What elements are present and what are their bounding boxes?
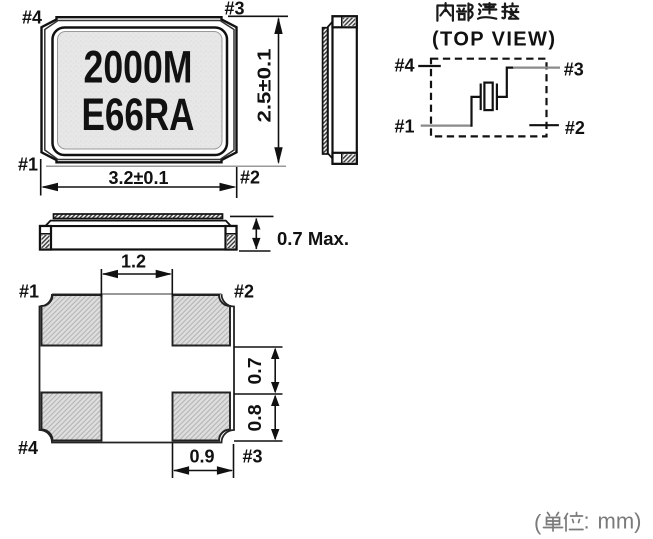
svg-text:#1: #1: [395, 116, 415, 136]
svg-text:(TOP VIEW): (TOP VIEW): [432, 29, 556, 51]
svg-text:mm): mm): [598, 509, 642, 534]
svg-text:#1: #1: [18, 155, 38, 175]
svg-text:#3: #3: [564, 60, 584, 80]
svg-text:0.8: 0.8: [245, 405, 265, 432]
svg-text:E66RA: E66RA: [82, 89, 195, 140]
svg-text:#2: #2: [565, 118, 585, 138]
svg-text:#3: #3: [243, 447, 263, 467]
svg-text:0.7: 0.7: [245, 358, 265, 385]
svg-text:#4: #4: [395, 55, 415, 75]
svg-text:2000M: 2000M: [84, 42, 193, 93]
svg-text:#2: #2: [240, 168, 260, 188]
svg-text:0.7 Max.: 0.7 Max.: [277, 228, 349, 249]
svg-text:3.2±0.1: 3.2±0.1: [109, 168, 169, 188]
svg-text:#1: #1: [19, 282, 39, 302]
svg-text:2.5±0.1: 2.5±0.1: [255, 49, 275, 123]
svg-text:#4: #4: [18, 438, 38, 458]
svg-text:(: (: [534, 510, 542, 535]
svg-text::: :: [584, 509, 590, 534]
svg-text:#4: #4: [22, 8, 42, 28]
svg-text:0.9: 0.9: [189, 447, 214, 467]
svg-text:1.2: 1.2: [121, 252, 146, 272]
svg-text:#2: #2: [234, 282, 254, 302]
